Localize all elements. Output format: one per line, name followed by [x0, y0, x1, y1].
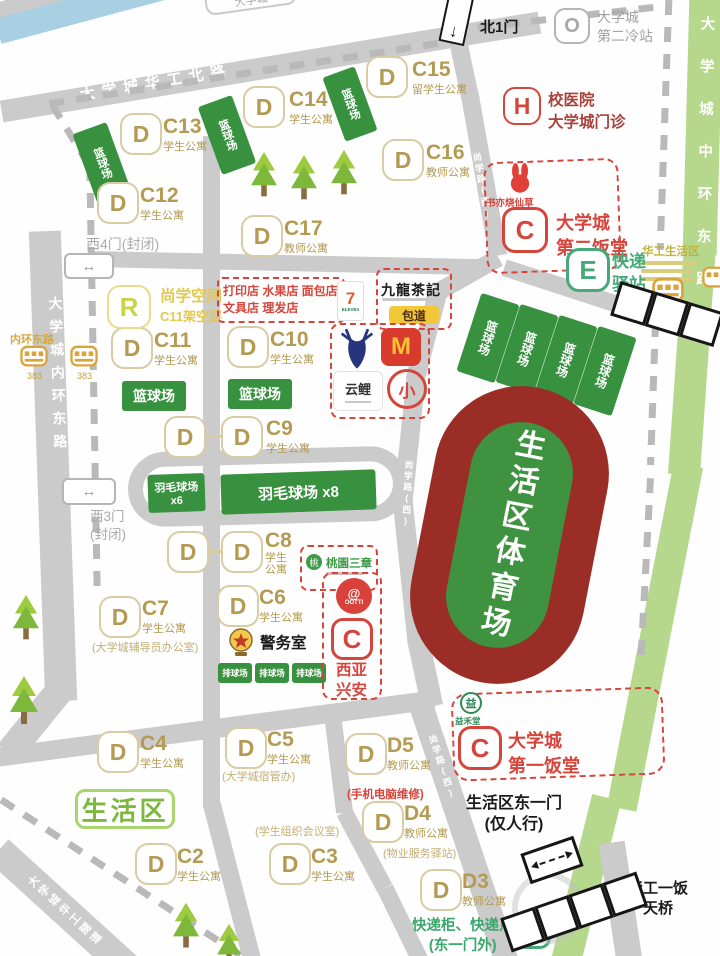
bus-icon: [20, 344, 48, 370]
tree-icon: [290, 155, 318, 203]
building-sub: 教师公寓: [404, 825, 448, 841]
pair-connector: [206, 435, 221, 438]
tree-icon: [8, 676, 40, 728]
mcdonalds-logo: M: [381, 328, 421, 366]
building-icon-c8: D: [167, 531, 209, 573]
building-code: D3: [462, 870, 489, 894]
bus-icon: [702, 264, 720, 292]
building-sub: 学生公寓: [163, 138, 207, 154]
xiya-label: 西亚兴安: [336, 661, 367, 701]
xiao-logo: 小: [387, 369, 427, 409]
building-icon-c16: D: [382, 139, 424, 181]
right-arrowhead: [565, 849, 574, 859]
building-icon-c3: D: [269, 843, 311, 885]
boundary-dash-east: [657, 0, 673, 250]
tree-icon: [12, 595, 40, 643]
building-icon-c5: D: [225, 727, 267, 769]
rabbit-icon: [506, 163, 534, 195]
building-icon-c8: D: [221, 531, 263, 573]
building-sub: 教师公寓: [284, 240, 328, 256]
tree-icon: [214, 924, 244, 956]
deer-logo: [337, 327, 377, 373]
taoyuan-logo: 桃: [306, 554, 322, 570]
building-icon-c2: D: [135, 843, 177, 885]
yunli-subline: [345, 401, 371, 404]
building-sub: 学生公寓: [142, 620, 186, 636]
building-code: C6: [259, 586, 286, 610]
building-note: (大学城宿管办): [222, 768, 295, 784]
bus-route: 383: [27, 371, 42, 381]
sw-road: 大学城华工隧道: [0, 839, 142, 956]
building-code: C9: [266, 417, 293, 441]
building-icon-c12: D: [97, 182, 139, 224]
bus-routes-smalltext: [641, 261, 697, 265]
building-code: C13: [163, 115, 202, 139]
phone-repair-note: (手机电脑维修): [347, 786, 424, 802]
study-space-icon: R: [107, 285, 151, 329]
building-sub: 学生公寓: [311, 868, 355, 884]
west-gate-3-label: 西3门(封闭): [90, 508, 126, 544]
building-icon-c6: D: [217, 585, 259, 627]
tree-icon: [250, 152, 278, 200]
building-code: C16: [426, 141, 465, 165]
seven-eleven-logo: 7 ELEVEn: [337, 281, 364, 321]
building-sub: 学生公寓: [265, 552, 291, 576]
down-arrow-icon: ↓: [447, 21, 459, 42]
west-road-name: 大学城内环东路: [45, 296, 71, 458]
lockers-label: 快递柜、快递点(东一门外): [412, 916, 514, 956]
north-gate-1-label: 北1门: [480, 16, 518, 37]
building-icon-c9: D: [221, 416, 263, 458]
bus-route: 383: [77, 371, 92, 381]
canteen2-icon: C: [502, 207, 548, 253]
building-code: C11: [154, 329, 191, 353]
left-arrowhead: [530, 861, 539, 871]
police-label: 警务室: [260, 631, 307, 653]
building-icon-c13: D: [120, 113, 162, 155]
building-sub: 学生公寓: [140, 207, 184, 223]
xiya-icon: C: [331, 618, 373, 660]
building-icon-c11: D: [111, 327, 153, 369]
building-icon-c10: D: [227, 326, 269, 368]
building-sub: 留学生公寓: [412, 81, 467, 97]
bus-routes-smalltext: [641, 269, 693, 273]
building-sub: 学生公寓: [154, 352, 198, 368]
two-way-arrow-icon: ↔: [82, 483, 97, 500]
building-code: C4: [140, 732, 167, 756]
building-code: D5: [387, 734, 414, 758]
building-code: C2: [177, 845, 204, 869]
volleyball-court: 排球场: [292, 663, 326, 683]
building-sub: 学生公寓: [289, 111, 333, 127]
building-sub: 教师公寓: [462, 893, 506, 909]
building-code: C3: [311, 845, 338, 869]
top-area-box: 大学城: [202, 0, 298, 16]
building-icon-c9: D: [164, 416, 206, 458]
building-sub: 学生公寓: [267, 751, 311, 767]
building-icon-c7: D: [99, 596, 141, 638]
cold-station-icon: O: [554, 8, 590, 44]
west-gate-4-label: 西4门(封闭): [86, 234, 159, 254]
two-way-arrow-icon: ↔: [82, 258, 97, 275]
meeting-room-note: (学生组织会议室): [255, 823, 339, 839]
property-service-note: (物业服务驿站): [383, 845, 456, 861]
building-code: C8: [265, 529, 292, 553]
hospital-label: 校医院大学城门诊: [548, 90, 626, 134]
volleyball-court: 排球场: [255, 663, 289, 683]
building-sub: 教师公寓: [426, 164, 470, 180]
campus-map: 大学城华工北路 大学城内环东路 大学城中环东路 大学城华工隧道 尚学路(西) 尚…: [0, 0, 720, 956]
badminton-court-x8: 羽毛球场 x8: [220, 469, 376, 514]
west-gate-3-icon: ↔: [62, 478, 116, 505]
building-sub: 学生公寓: [266, 440, 310, 456]
building-code: C12: [140, 184, 179, 208]
east-gate-1-label: 生活区东一门(仅人行): [466, 793, 562, 835]
canteen1-label: 大学城第一饭堂: [508, 729, 580, 779]
building-sub: 学生公寓: [259, 609, 303, 625]
hospital-icon: H: [503, 87, 541, 125]
stadium-label: 生活区体育场: [467, 425, 551, 645]
pair-connector: [209, 550, 221, 553]
yunli-logo: 云鲤: [333, 371, 383, 411]
stadium-field: 生活区体育场: [437, 413, 582, 656]
building-icon-d5: D: [345, 733, 387, 775]
baodao-logo: 包道: [389, 306, 439, 324]
building-icon-c4: D: [97, 731, 139, 773]
police-badge-icon: [226, 627, 256, 657]
shops-row-label: 打印店 水果店 面包店文具店 理发店: [223, 283, 338, 317]
building-code: C15: [412, 58, 451, 82]
basketball-court: 篮球场: [122, 381, 186, 411]
kowloon-tea-subline: [382, 298, 438, 301]
bus-icon: [70, 344, 98, 370]
taoyuan-label: 桃園三章: [326, 555, 372, 571]
kowloon-tea-label: 九龍茶記: [381, 280, 441, 300]
building-code: C7: [142, 597, 169, 621]
dashed-line: [539, 855, 564, 865]
tree-icon: [172, 900, 200, 954]
sw-road-name: 大学城华工隧道: [23, 872, 106, 950]
building-icon-c17: D: [241, 215, 283, 257]
building-code: C10: [270, 328, 309, 352]
bus-stop-east-label: 华工生活区: [642, 243, 700, 259]
building-code: C17: [284, 217, 323, 241]
study-space-label: 尚学空间C11架空层: [160, 287, 222, 327]
building-icon-d4: D: [362, 801, 404, 843]
top-area-box-label: 大学城: [234, 0, 269, 10]
express-station-icon: E: [566, 248, 610, 292]
building-code: C5: [267, 728, 294, 752]
tree-icon: [330, 150, 358, 198]
canteen1-icon: C: [458, 726, 502, 770]
building-code: D4: [404, 802, 431, 826]
badminton-court-x6: 羽毛球场x6: [147, 473, 205, 513]
cold-station-label: 大学城第二冷站: [597, 8, 653, 46]
volleyball-court: 排球场: [218, 663, 252, 683]
building-note: (大学城辅导员办公室): [92, 639, 198, 655]
building-icon-c15: D: [366, 56, 408, 98]
building-sub: 学生公寓: [140, 755, 184, 771]
ootti-logo: @ OOTTI: [336, 578, 372, 614]
building-code: C14: [289, 88, 328, 112]
yihetang-logo: 益: [460, 692, 482, 714]
building-sub: 学生公寓: [270, 351, 314, 367]
west-gate-4-icon: ↔: [64, 253, 114, 279]
building-icon-c14: D: [243, 86, 285, 128]
basketball-court: 篮球场: [228, 379, 292, 409]
building-sub: 学生公寓: [177, 868, 221, 884]
building-sub: 教师公寓: [387, 757, 431, 773]
stadium-track: 生活区体育场: [395, 371, 624, 699]
living-area-sign: 生活区: [75, 789, 175, 829]
building-icon-d3: D: [420, 869, 462, 911]
